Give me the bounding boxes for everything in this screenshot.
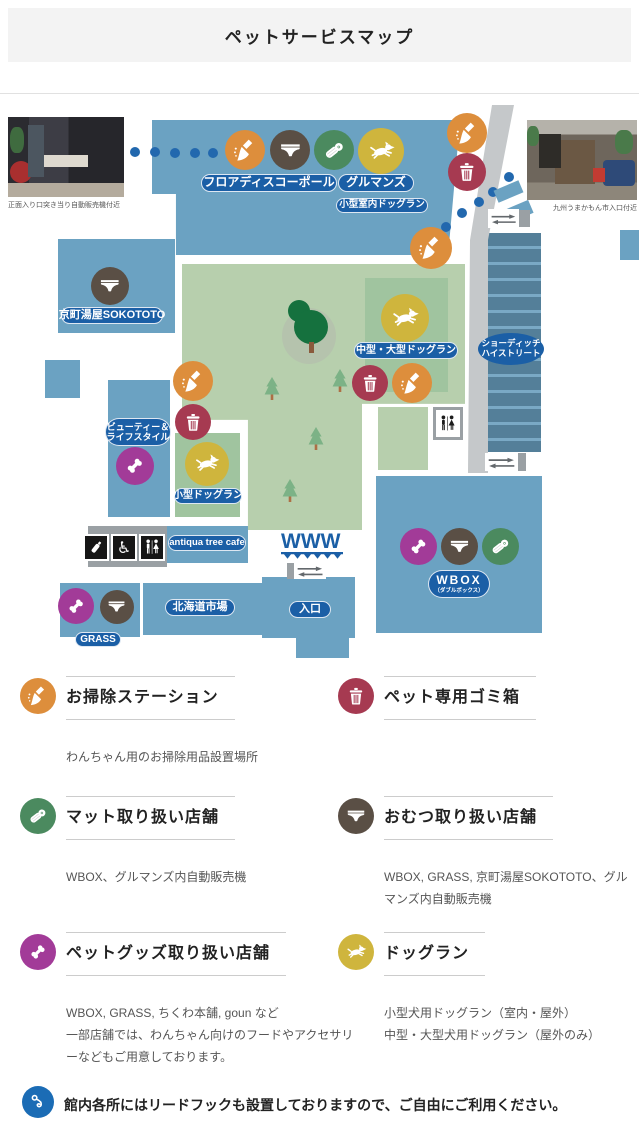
wheelchair-icon: ♿ [111,534,137,561]
legend-title: おむつ取り扱い店舗 [384,796,553,840]
broom-icon [173,361,213,401]
broom-icon [410,227,452,269]
trash-icon [338,678,374,714]
mat-icon [20,798,56,834]
pine-tree-icon [282,479,298,505]
legend-title: お掃除ステーション [66,676,235,720]
building-small-annex [45,360,80,398]
broom-icon [20,678,56,714]
path-dot [474,197,484,207]
legend-item: ペットグッズ取り扱い店舗 WBOX, GRASS, ちくわ本舗, goun など… [20,932,356,1068]
broom-icon [447,113,487,153]
legend-title: ペット専用ゴミ箱 [384,676,536,720]
label-hokkaido-market: 北海道市場 [165,599,235,616]
label-mid-large-dogrun: 中型・大型ドッグラン [354,342,458,359]
trash-icon [175,404,211,440]
www-mark: WWW [281,531,340,552]
broom-icon [392,363,432,403]
label-entrance: 入口 [289,601,331,618]
label-shoreditch-high-street: ショーディッチ ハイストリート [478,333,544,365]
mat-icon [482,528,519,565]
www-fringe [281,552,343,560]
vending-bottle-icon [83,534,109,561]
legend-item: ドッグラン 小型犬用ドッグラン（室内・屋外） 中型・大型犬用ドッグラン（屋外のみ… [338,932,600,1046]
restroom-icon [139,534,165,561]
legend-title: ペットグッズ取り扱い店舗 [66,932,286,976]
photo-caption-left: 正面入り口突き当り自動販売機付近 [8,200,124,210]
dog-icon [381,294,429,342]
dog-icon [185,442,229,486]
diaper-icon [338,798,374,834]
pine-tree-icon [332,369,348,395]
label-grass: GRASS [75,632,121,647]
legend-item: おむつ取り扱い店舗 WBOX, GRASS, 京町湯屋SOKOTOTO、グルマン… [338,796,634,910]
escalator-icon [485,453,518,471]
legend-desc: WBOX、グルマンズ内自動販売機 [66,866,246,888]
tree-trunk [309,342,314,353]
leash-hook-icon [22,1086,54,1118]
label-beauty-lifestyle: ビューティー＆ ライフスタイル [105,418,171,446]
legend-desc: WBOX, GRASS, ちくわ本舗, goun など 一部店舗では、わんちゃん… [66,1002,356,1068]
path-dot [504,172,514,182]
leash-hook-note: 館内各所にはリードフックも設置しておりますので、ご自由にご利用ください。 [64,1095,629,1115]
path-dot [190,148,200,158]
diaper-icon [100,590,134,624]
label-kyomachi-yuya: 京町湯屋SOKOTOTO [61,307,163,324]
escalator-end [519,210,530,227]
path-dot [130,147,140,157]
dog-icon [358,128,404,174]
label-floor-disco: フロアディスコーポール [201,174,337,192]
path-dot [150,147,160,157]
escalator-icon [488,209,519,228]
restroom-sign [433,407,463,440]
path-dot [170,148,180,158]
dog-icon [338,934,374,970]
pine-tree-icon [264,377,280,403]
path-dot [208,148,218,158]
trash-icon [352,365,388,401]
escalator-icon [294,562,326,579]
broom-icon [225,130,265,170]
bone-icon [400,528,437,565]
legend-item: マット取り扱い店舗 WBOX、グルマンズ内自動販売機 [20,796,246,888]
diaper-icon [270,130,310,170]
label-indoor-small-dogrun: 小型室内ドッグラン [336,198,428,213]
trash-icon [448,153,486,191]
legend-item: ペット専用ゴミ箱 [338,676,536,746]
legend-item: お掃除ステーション わんちゃん用のお掃除用品設置場所 [20,676,258,768]
label-small-dogrun: 小型ドッグラン [174,488,242,504]
tree-canopy-large [294,310,328,344]
legend-desc: わんちゃん用のお掃除用品設置場所 [66,746,258,768]
pine-tree-icon [308,427,324,453]
building-entrance-tab [296,637,349,658]
legend-desc: WBOX, GRASS, 京町湯屋SOKOTOTO、グルマンズ内自動販売機 [384,866,634,910]
mat-icon [314,130,354,170]
bone-icon [20,934,56,970]
path-dot [457,208,467,218]
photo-caption-right: 九州うまかもん市入口付近 [527,203,637,213]
legend-title: マット取り扱い店舗 [66,796,235,840]
photo-front-entrance-vending [8,117,124,197]
diaper-icon [91,267,129,305]
label-wbox: WBOX （ダブルボックス） [428,570,490,598]
building-east-stub [620,230,639,260]
diaper-icon [441,528,478,565]
legend-title: ドッグラン [384,932,485,976]
green-patch [378,407,428,470]
escalator-end [287,563,294,579]
photo-kyushu-umakamon-entrance [527,120,637,200]
escalator-end [518,453,526,471]
bone-icon [116,447,154,485]
label-gourmands: グルマンズ [338,174,414,192]
legend-desc: 小型犬用ドッグラン（室内・屋外） 中型・大型犬用ドッグラン（屋外のみ） [384,1002,600,1046]
label-antiqua-tree-cafe: antiqua tree cafe [168,535,246,551]
bone-icon [58,588,94,624]
